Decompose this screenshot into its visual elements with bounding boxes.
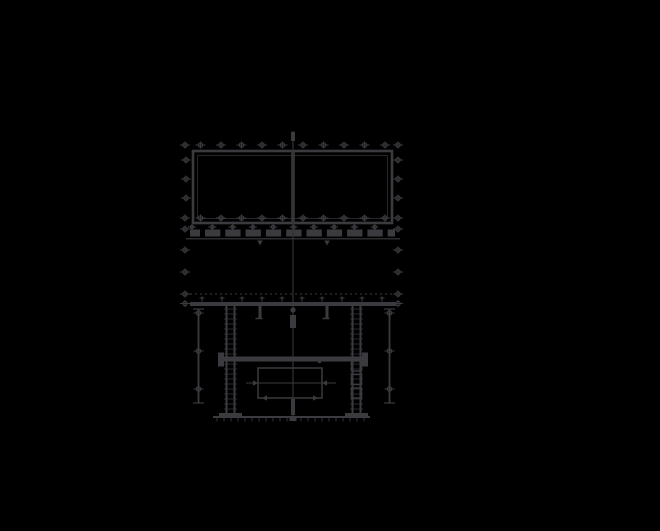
centerline-top-knob (291, 132, 295, 141)
right-flange-bolt-column (393, 157, 403, 202)
centerline-bottom-knob (291, 399, 295, 415)
centerline-bolt-knob (290, 307, 295, 312)
weld-mark (318, 360, 321, 363)
left-column-base-plate (219, 413, 242, 417)
centerline-mid-knob (290, 315, 296, 328)
right-hanger-bracket (326, 306, 329, 318)
top-flange-bolt-row (180, 142, 403, 149)
box-bottom-arrow-right (313, 395, 318, 401)
mid-beam-right-end-plate (362, 353, 368, 367)
left-side-bolt-column (180, 226, 190, 308)
box-bottom-arrow-left (262, 395, 267, 401)
frame-top-beam-studs (200, 297, 385, 302)
right-column-base-plate (345, 413, 368, 417)
weld-arrow-right (324, 241, 330, 246)
left-flange-bolt-column (181, 157, 191, 202)
mid-beam-left-end-plate (218, 353, 224, 367)
drawing-canvas (0, 0, 660, 531)
technical-drawing (0, 0, 660, 531)
weld-arrow-left (257, 241, 263, 246)
left-hanger-bracket (259, 306, 262, 318)
right-side-bolt-column (393, 226, 403, 308)
